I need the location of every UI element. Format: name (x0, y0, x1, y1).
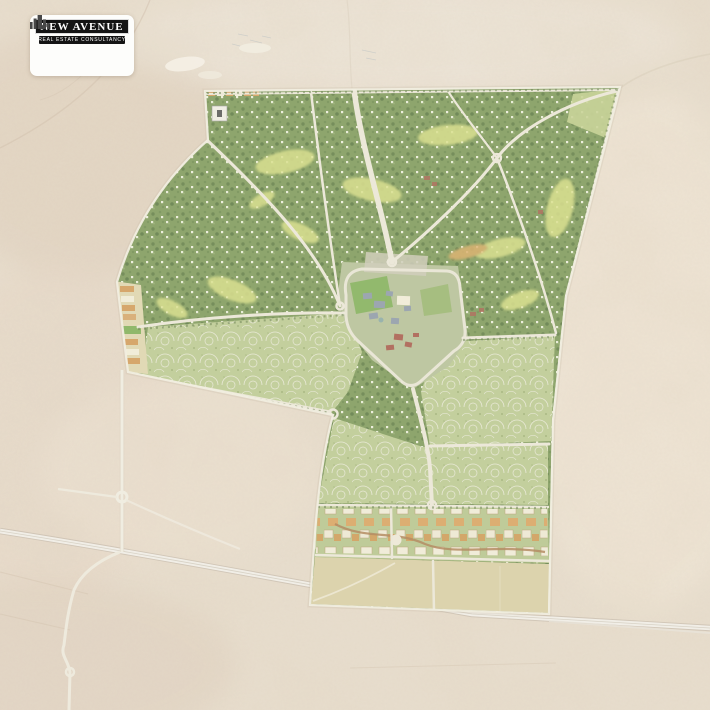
brand-subbanner: REAL ESTATE CONSULTANCY (39, 36, 125, 44)
masterplan-screenshot: NEW AVENUE REAL ESTATE CONSULTANCY (0, 0, 710, 710)
brand-subtitle: REAL ESTATE CONSULTANCY (38, 37, 126, 43)
brand-logo: NEW AVENUE REAL ESTATE CONSULTANCY (30, 15, 134, 76)
skyline-building-icon (30, 15, 50, 29)
photo-veil (0, 0, 710, 710)
brand-title: NEW AVENUE (40, 21, 123, 33)
masterplan-map (0, 0, 710, 710)
